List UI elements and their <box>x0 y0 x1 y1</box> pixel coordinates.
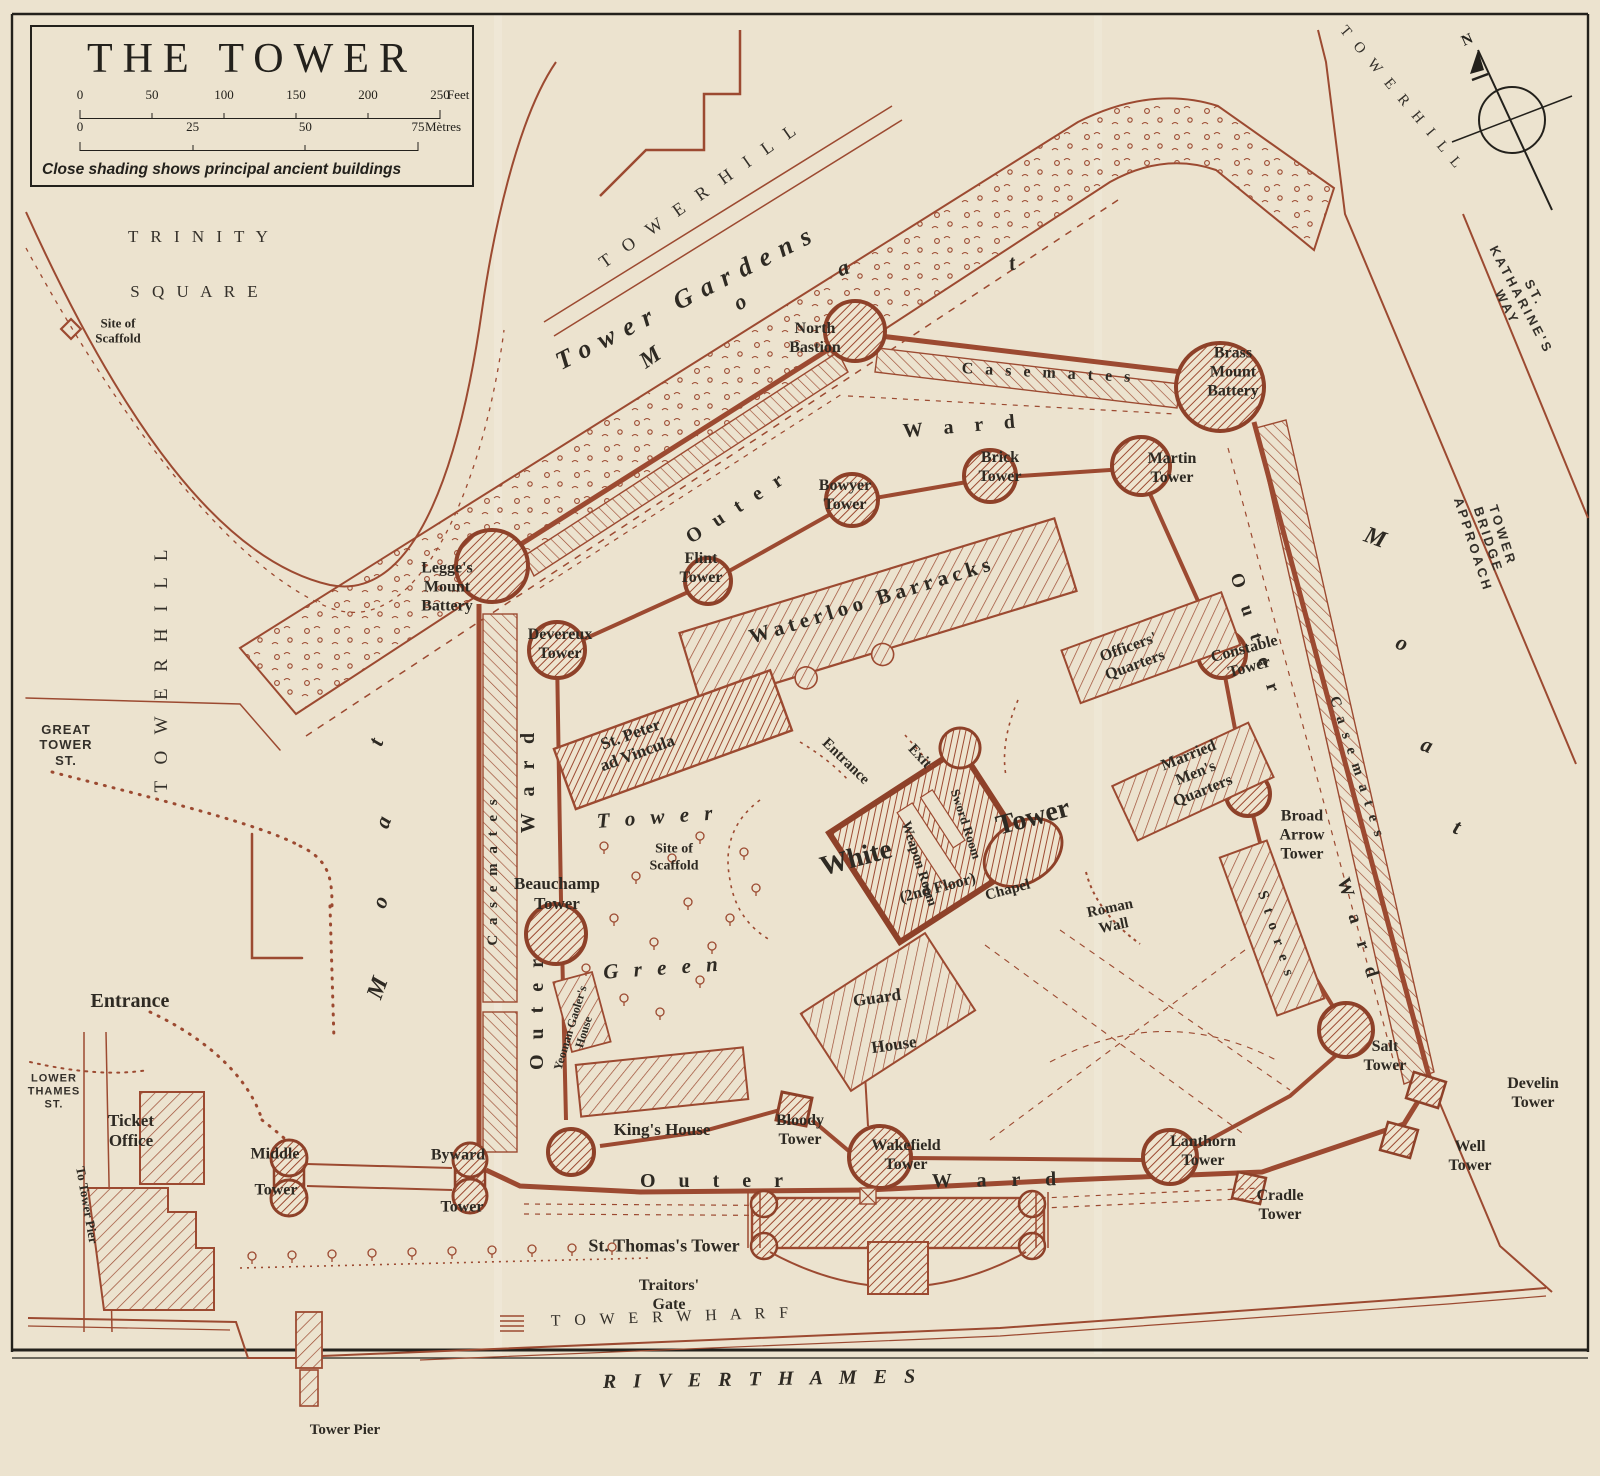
north-bastion-shape <box>825 301 885 361</box>
bowyer-tower-shape <box>826 474 878 526</box>
byward-tower-shape <box>453 1143 487 1177</box>
cradle-tower-shape <box>1232 1172 1266 1204</box>
bloody-tower-shape <box>776 1092 812 1126</box>
devereux-tower-shape <box>529 622 585 678</box>
waterloo-barracks-shape <box>679 518 1076 705</box>
wharf-trees <box>248 1243 616 1264</box>
guard-house-shape <box>801 933 975 1091</box>
map-title: THE TOWER <box>32 35 472 83</box>
white-tower-shape <box>818 711 1074 961</box>
compass-north-label: N <box>1459 31 1476 50</box>
scale-tick: 50 <box>299 119 312 135</box>
scale-tick: 0 <box>77 119 84 135</box>
gate-mark <box>860 1188 876 1204</box>
flint-tower-shape <box>685 558 731 604</box>
legend-note: Close shading shows principal ancient bu… <box>42 161 401 179</box>
scale-unit: Mètres <box>425 119 461 135</box>
legges-mount-shape <box>456 530 528 602</box>
married-mens-quarters-shape <box>1112 723 1273 841</box>
scale-metres: 0255075Mètres <box>80 121 418 151</box>
map-root: N THE TOWER 050100150200250Feet 0255075M… <box>0 0 1600 1476</box>
scale-tick: 150 <box>286 87 306 103</box>
southwest-building-shape <box>88 1188 214 1310</box>
kings-house-shape <box>576 1047 749 1116</box>
salt-tower-shape <box>1319 1003 1373 1057</box>
causeway <box>307 1164 452 1190</box>
map-drawing: N <box>0 0 1600 1476</box>
stores-shape <box>1220 841 1324 1016</box>
middle-tower-shape <box>271 1140 307 1176</box>
wharf-stairs <box>500 1316 524 1331</box>
develin-tower-shape <box>1406 1072 1446 1108</box>
scale-tick: 75 <box>412 119 425 135</box>
wakefield-tower-shape <box>849 1126 911 1188</box>
wharf <box>28 1243 1546 1406</box>
st-katharines-street <box>1318 30 1588 1292</box>
brick-tower-shape <box>964 450 1016 502</box>
beauchamp-tower-shape <box>526 904 586 964</box>
tower-green-trees <box>582 832 760 1020</box>
scaffold-site-icon <box>61 319 81 339</box>
bell-tower-shape <box>548 1129 594 1175</box>
officers-quarters-shape <box>1061 592 1240 703</box>
lanthorn-tower-shape <box>1143 1130 1197 1184</box>
tower-pier-shape <box>296 1312 322 1368</box>
ticket-office-shape <box>140 1092 204 1184</box>
st-peter-shape <box>554 670 792 809</box>
compass-rose-icon: N <box>1452 31 1572 210</box>
scale-unit: Feet <box>447 87 469 103</box>
title-block: THE TOWER 050100150200250Feet 0255075Mèt… <box>30 25 474 187</box>
scale-tick: 100 <box>214 87 234 103</box>
scale-feet: 050100150200250Feet <box>80 89 440 119</box>
st-thomass-tower-shape <box>748 1191 1048 1294</box>
well-tower-shape <box>1380 1122 1418 1158</box>
scale-tick: 50 <box>146 87 159 103</box>
scale-tick: 200 <box>358 87 378 103</box>
brass-mount-shape <box>1176 343 1264 431</box>
martin-tower-shape <box>1112 437 1170 495</box>
scale-tick: 0 <box>77 87 84 103</box>
scale-tick: 25 <box>186 119 199 135</box>
traitors-gate-shape <box>868 1242 928 1294</box>
yeoman-gaolers-house-shape <box>553 972 610 1052</box>
